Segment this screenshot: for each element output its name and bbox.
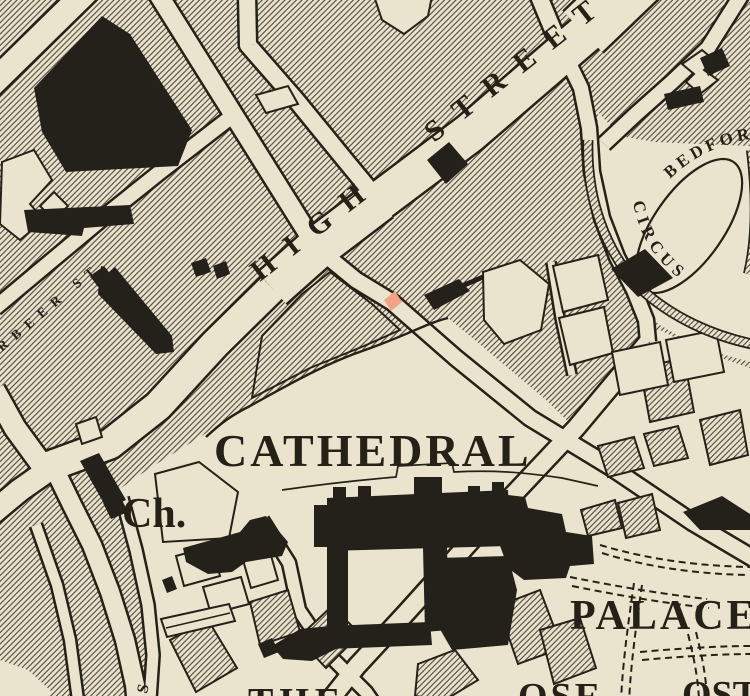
svg-text:OSE: OSE (518, 676, 603, 696)
svg-text:Ch.: Ch. (122, 491, 186, 537)
svg-text:OST: OST (682, 674, 750, 696)
svg-text:THE: THE (248, 681, 346, 696)
svg-text:PALACE: PALACE (570, 593, 750, 639)
svg-text:CATHEDRAL: CATHEDRAL (214, 425, 532, 476)
